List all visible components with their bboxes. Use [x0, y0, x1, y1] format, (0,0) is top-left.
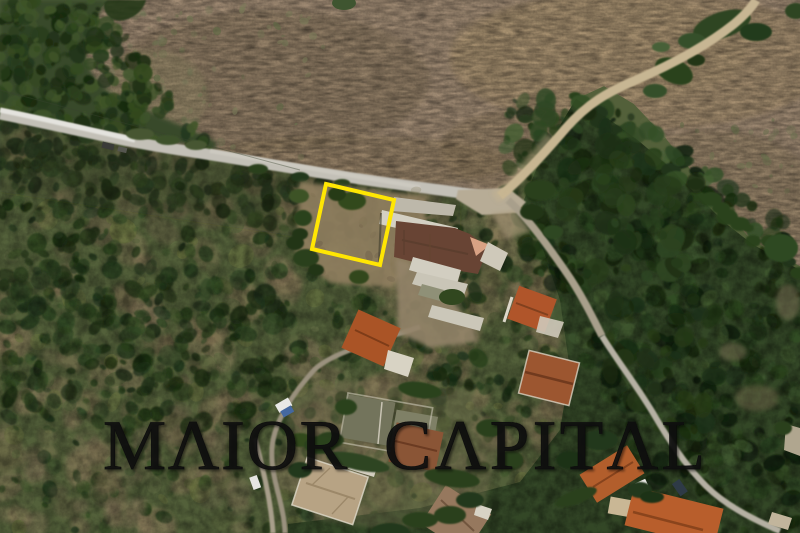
svg-text:MΛIOR: MΛIOR	[103, 407, 348, 485]
